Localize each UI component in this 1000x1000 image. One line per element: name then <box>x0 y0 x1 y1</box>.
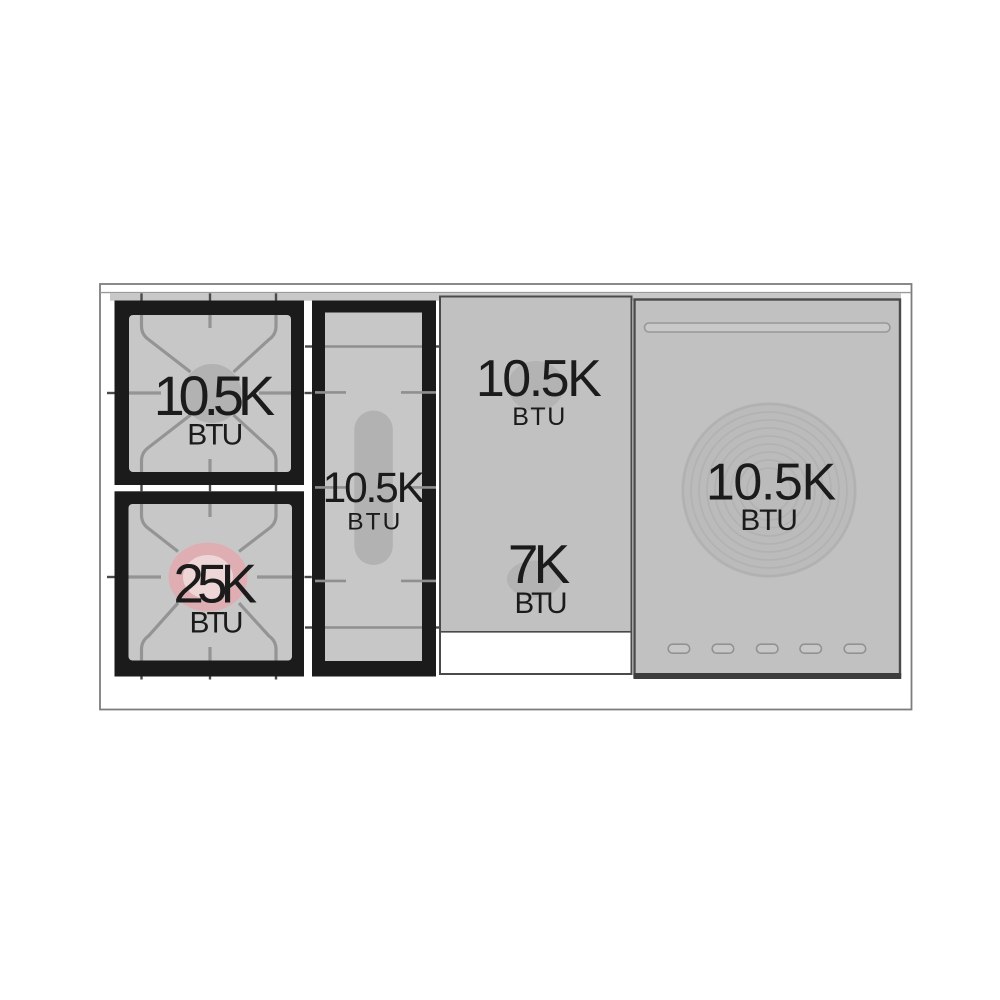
svg-text:10.5K: 10.5K <box>476 350 602 408</box>
svg-text:BTU: BTU <box>347 509 402 536</box>
svg-text:10.5K: 10.5K <box>706 454 837 512</box>
svg-text:BTU: BTU <box>187 419 241 452</box>
svg-text:BTU: BTU <box>740 504 796 537</box>
svg-text:BTU: BTU <box>515 587 567 620</box>
svg-text:25K: 25K <box>173 553 257 615</box>
svg-text:BTU: BTU <box>190 606 242 639</box>
svg-text:BTU: BTU <box>512 403 567 431</box>
svg-text:10.5K: 10.5K <box>323 465 425 512</box>
svg-text:7K: 7K <box>508 533 571 595</box>
